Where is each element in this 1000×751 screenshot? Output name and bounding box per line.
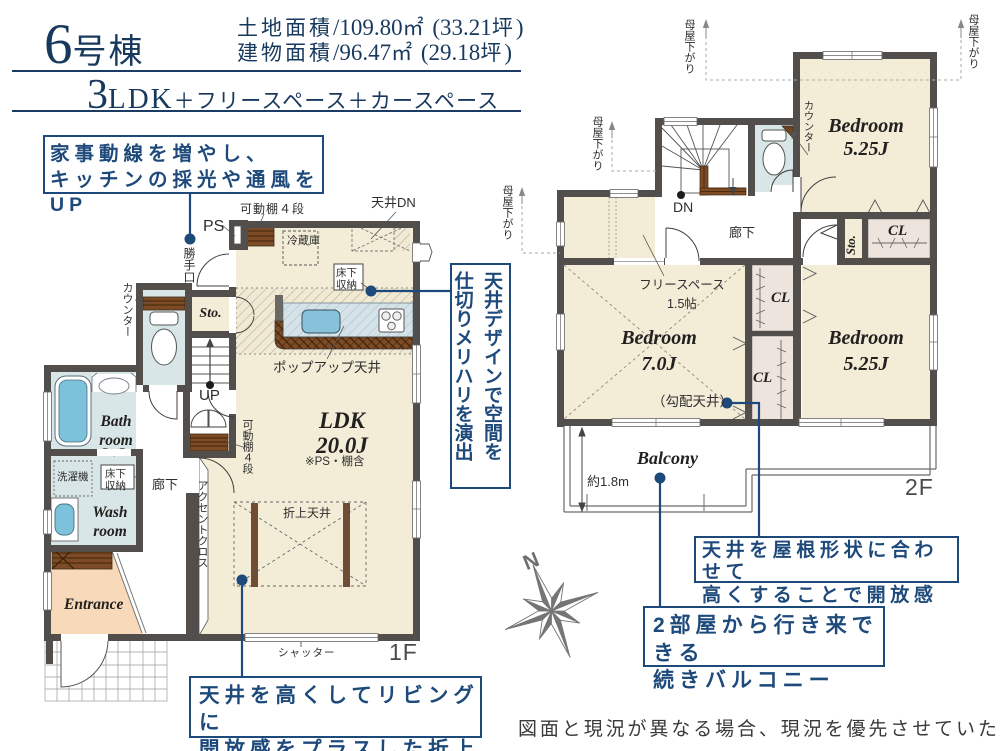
svg-text:N: N [520,548,543,575]
